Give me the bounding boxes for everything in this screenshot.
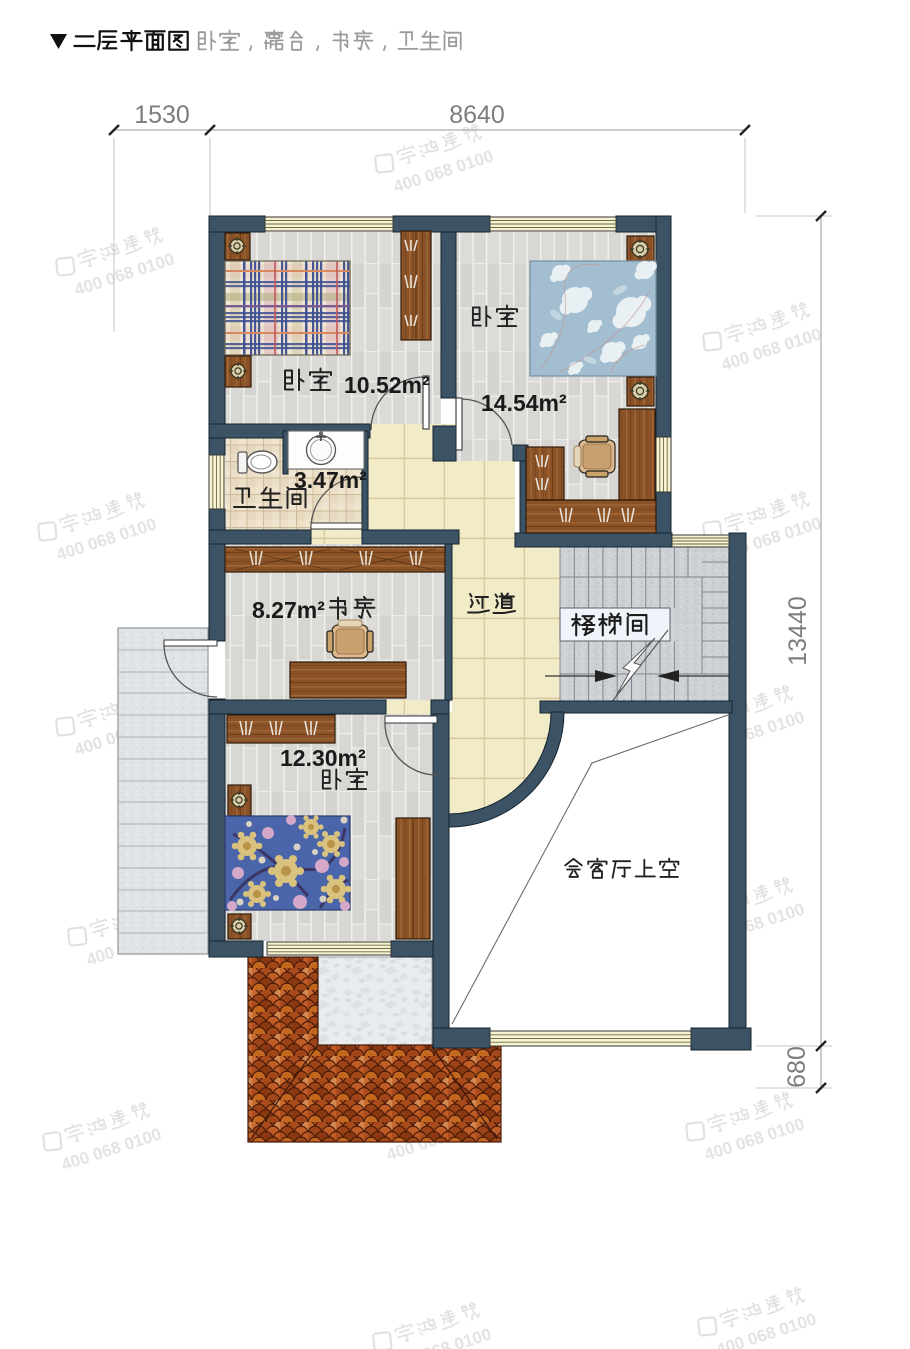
svg-text:8640: 8640 <box>449 101 505 129</box>
svg-text:12.30m²: 12.30m² <box>280 745 366 771</box>
svg-text:1530: 1530 <box>134 101 190 129</box>
svg-text:13440: 13440 <box>784 596 812 666</box>
svg-text:680: 680 <box>783 1046 811 1088</box>
svg-text:8.27m²: 8.27m² <box>252 597 325 623</box>
svg-text:14.54m²: 14.54m² <box>481 390 567 416</box>
svg-text:10.52m²: 10.52m² <box>344 372 430 398</box>
